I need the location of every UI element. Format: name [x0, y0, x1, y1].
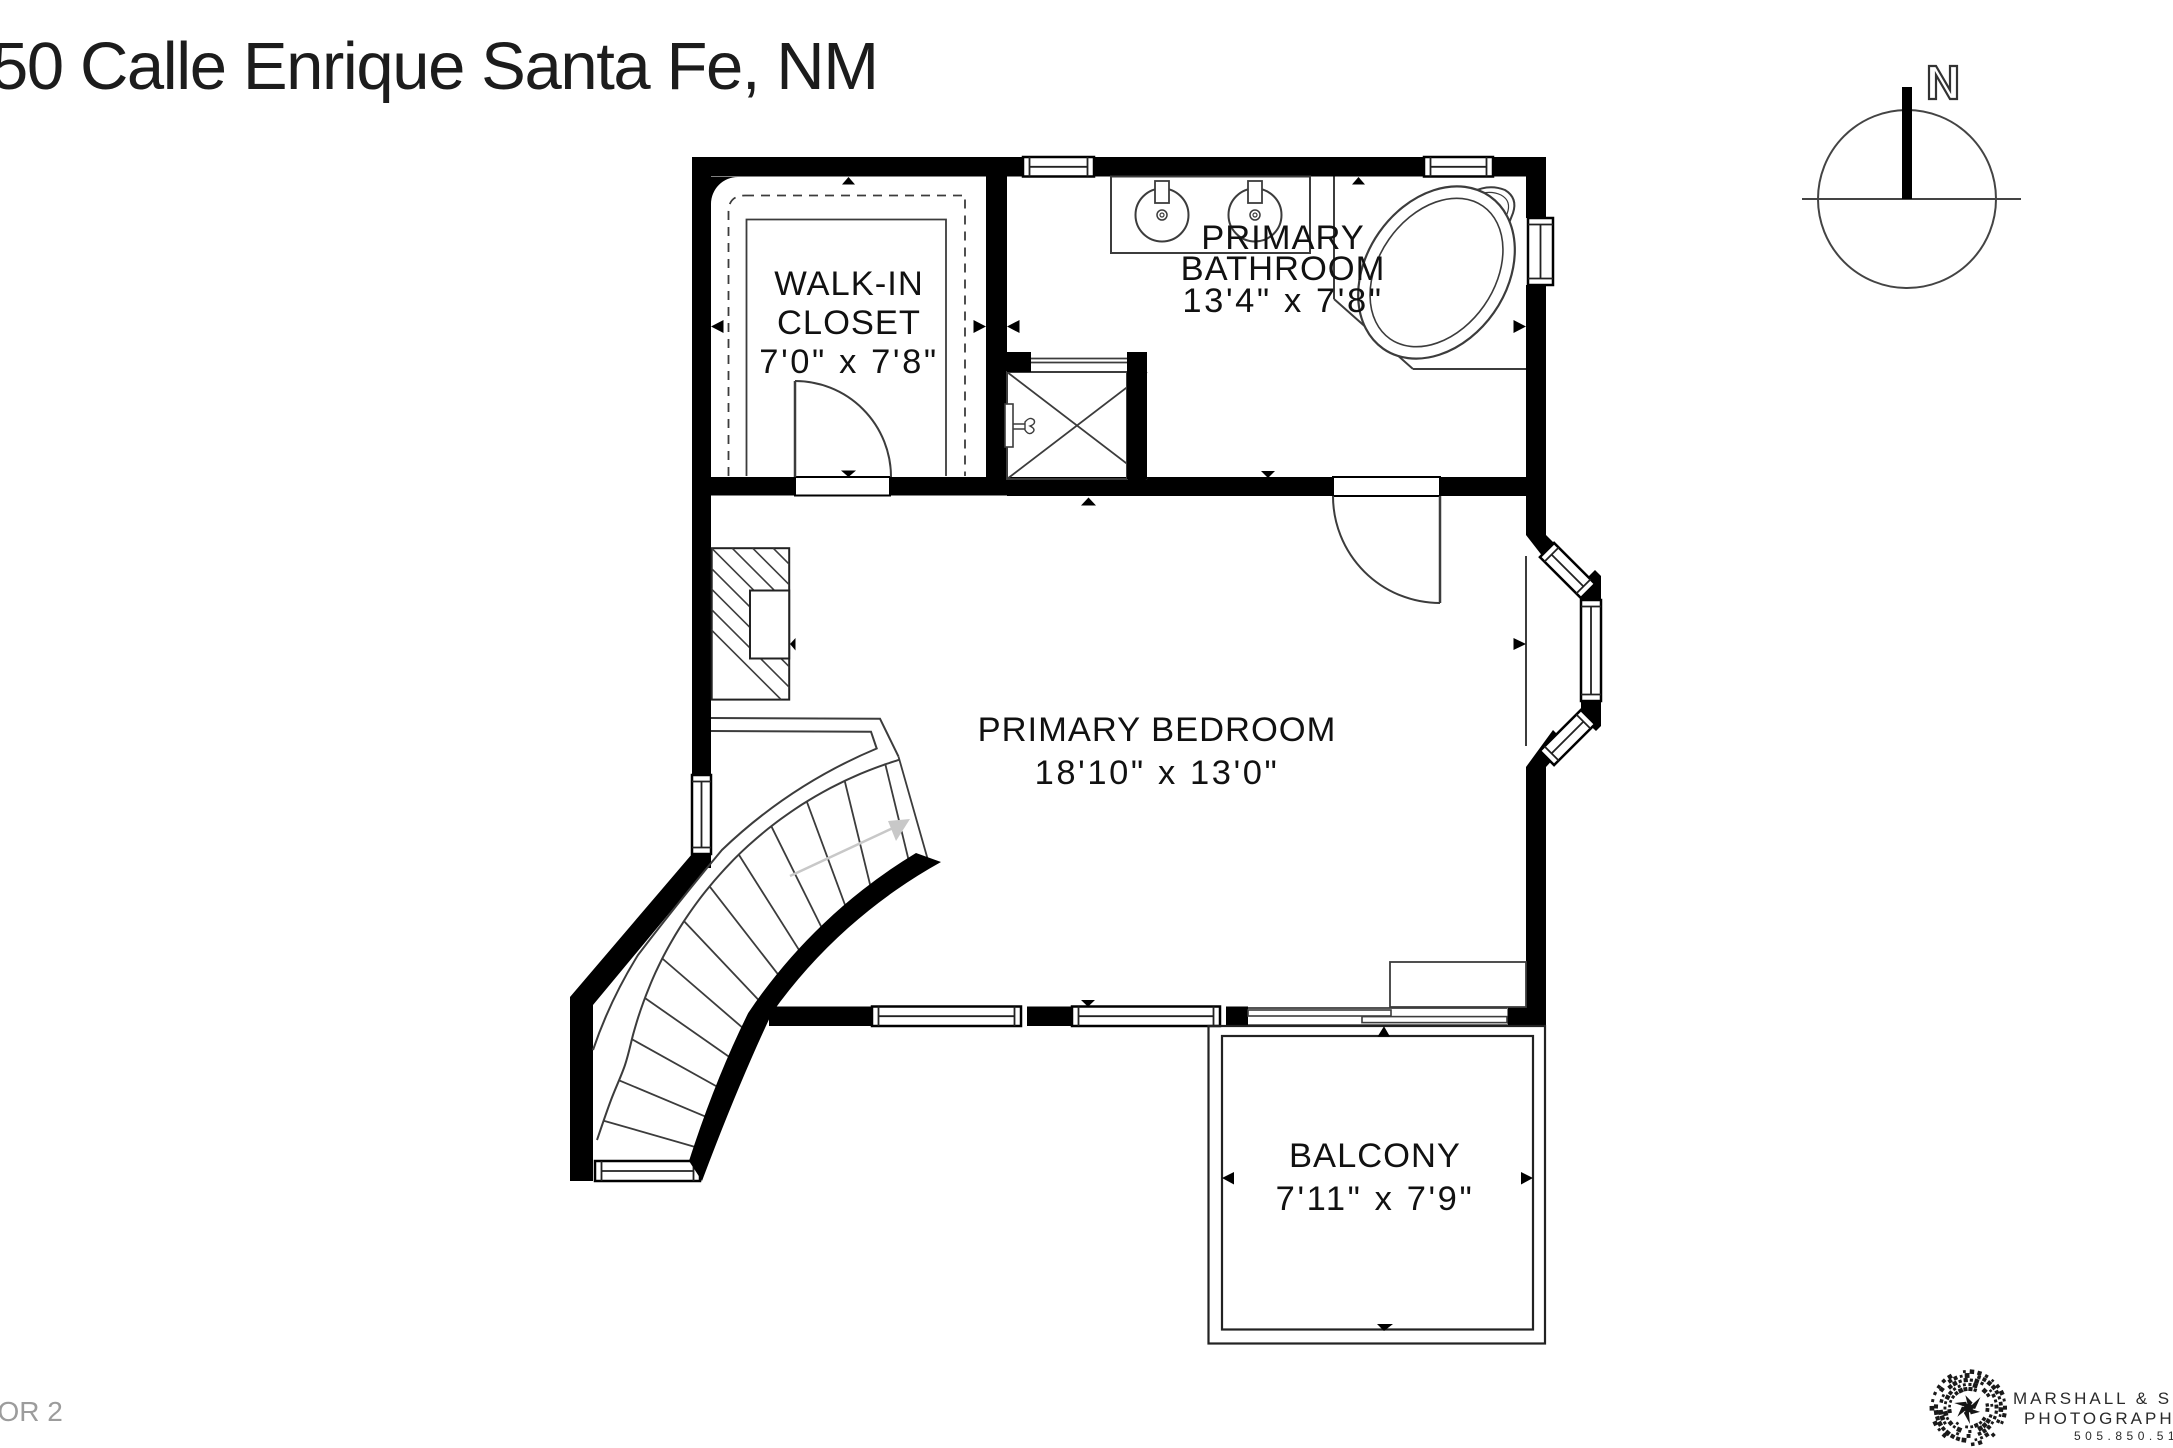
svg-text:50 Calle Enrique Santa Fe, NM: 50 Calle Enrique Santa Fe, NM	[0, 29, 878, 104]
svg-text:13'4" x 7'8": 13'4" x 7'8"	[1182, 282, 1383, 320]
svg-text:18'10" x 13'0": 18'10" x 13'0"	[1035, 754, 1280, 792]
svg-text:7'11" x 7'9": 7'11" x 7'9"	[1276, 1180, 1475, 1218]
svg-text:FLOOR 2: FLOOR 2	[0, 1396, 63, 1427]
svg-text:7'0" x 7'8": 7'0" x 7'8"	[759, 343, 938, 381]
svg-text:CLOSET: CLOSET	[777, 304, 921, 342]
svg-text:BALCONY: BALCONY	[1289, 1137, 1461, 1175]
svg-text:WALK-IN: WALK-IN	[774, 265, 923, 303]
svg-text:PRIMARY BEDROOM: PRIMARY BEDROOM	[978, 711, 1337, 749]
svg-text:505.850.519: 505.850.519	[2074, 1429, 2173, 1443]
svg-text:PHOTOGRAPH: PHOTOGRAPH	[2024, 1409, 2173, 1428]
svg-text:MARSHALL & S: MARSHALL & S	[2013, 1389, 2172, 1408]
